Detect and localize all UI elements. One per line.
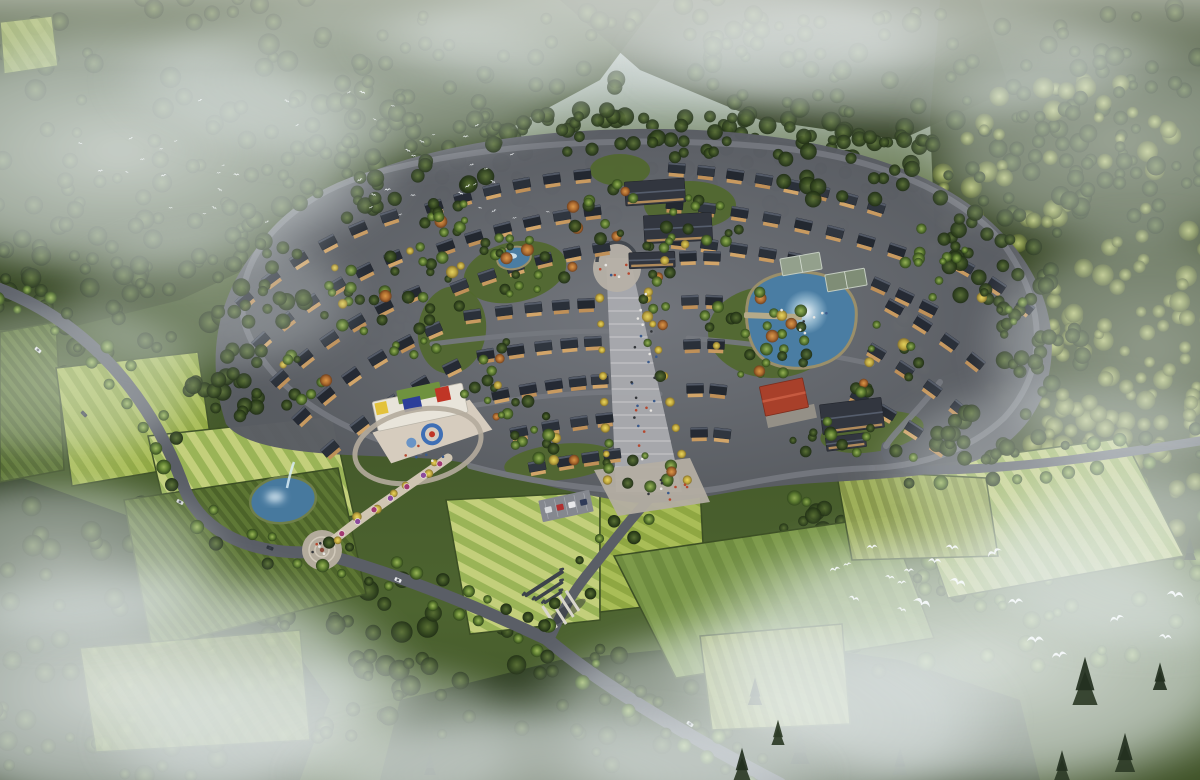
pedestrian [669, 498, 672, 501]
garden-tree [852, 448, 862, 458]
garden-tree [460, 390, 469, 399]
garden-tree [823, 417, 833, 427]
street-tree [410, 566, 424, 580]
boundary-tree [938, 233, 951, 246]
garden-tree [418, 257, 427, 266]
boundary-tree [805, 191, 822, 208]
garden-tree [379, 290, 391, 302]
garden-tree [320, 374, 332, 386]
garden-tree [825, 429, 837, 441]
street-tree [323, 537, 335, 549]
pedestrian [618, 275, 621, 278]
garden-tree [873, 321, 881, 329]
garden-tree [431, 343, 442, 354]
pedestrian [802, 320, 805, 323]
garden-tree [683, 223, 694, 234]
garden-tree [542, 413, 549, 420]
garden-tree [360, 327, 369, 336]
street-tree [453, 608, 466, 621]
plaza-sculpture [320, 548, 324, 552]
garden-tree [525, 236, 534, 245]
garden-tree [478, 355, 488, 365]
cafe-umbrella [339, 531, 345, 537]
pedestrian [825, 312, 828, 315]
villa-house [709, 384, 727, 400]
pond-glint [266, 492, 284, 502]
garden-tree [469, 382, 481, 394]
garden-tree [809, 428, 817, 436]
garden-tree [569, 455, 580, 466]
pedestrian [318, 545, 321, 548]
street-tree [391, 556, 403, 568]
garden-tree [461, 217, 468, 224]
garden-tree [642, 242, 651, 251]
garden-tree [487, 366, 497, 376]
pedestrian [599, 268, 602, 271]
garden-tree [506, 243, 513, 250]
garden-tree [522, 395, 535, 408]
pedestrian [645, 293, 648, 296]
cafe-umbrella [420, 472, 426, 478]
garden-tree [540, 251, 551, 262]
garden-tree [479, 246, 488, 255]
garden-tree [406, 247, 414, 255]
garden-tree [855, 386, 867, 398]
boundary-tree [638, 113, 649, 124]
pedestrian [315, 543, 318, 546]
villa-house [686, 383, 703, 397]
street-tree [538, 619, 551, 632]
forest-tree [377, 597, 391, 611]
garden-tree [617, 230, 624, 237]
boundary-tree [971, 270, 987, 286]
street-tree [595, 534, 604, 543]
garden-tree [627, 455, 639, 467]
garden-tree [612, 179, 623, 190]
pedestrian [311, 551, 314, 554]
pedestrian [686, 486, 689, 489]
pedestrian [655, 355, 658, 358]
garden-tree [906, 342, 915, 351]
garden-tree [511, 398, 520, 407]
villa-house [569, 376, 587, 392]
cafe-umbrella [371, 507, 377, 513]
street-tree [608, 515, 621, 528]
garden-tree [660, 256, 669, 265]
cafe-umbrella [387, 495, 393, 501]
pedestrian [648, 353, 651, 356]
garden-tree [660, 221, 673, 234]
garden-tree [436, 251, 448, 263]
pedestrian [780, 309, 783, 312]
garden-tree [549, 455, 559, 465]
garden-tree [777, 351, 787, 361]
garden-tree [950, 241, 960, 251]
pedestrian [630, 381, 633, 384]
pedestrian [647, 493, 650, 496]
pedestrian [635, 409, 638, 412]
pedestrian [637, 317, 640, 320]
garden-tree [603, 463, 614, 474]
boundary-tree [477, 168, 494, 185]
boundary-tree [952, 287, 968, 303]
street-tree [156, 460, 171, 475]
pedestrian [684, 483, 687, 486]
garden-tree [644, 481, 656, 493]
villa-house [729, 242, 748, 258]
garden-tree [661, 302, 670, 311]
pedestrian [627, 272, 630, 275]
fog-patch [50, 220, 370, 380]
garden-tree [700, 310, 711, 321]
street-tree [337, 569, 346, 578]
street-tree [292, 558, 302, 568]
villa-house [495, 305, 513, 321]
pedestrian [667, 492, 670, 495]
garden-tree [713, 342, 721, 350]
garden-tree [484, 397, 491, 404]
garden-tree [584, 198, 594, 208]
villa-house [545, 378, 564, 394]
garden-tree [642, 311, 653, 322]
villa-house [703, 251, 721, 265]
pedestrian [625, 264, 628, 267]
boundary-tree [889, 164, 900, 175]
villa-house [534, 340, 553, 356]
street-tree [436, 573, 449, 586]
garden-tree [740, 329, 750, 339]
garden-tree [418, 292, 429, 303]
villa-house [730, 206, 749, 222]
garden-tree [705, 322, 715, 332]
ginkgo-tree [603, 475, 612, 484]
garden-tree [900, 257, 912, 269]
garden-tree [600, 219, 610, 229]
cafe-umbrella [355, 519, 361, 525]
villa-house [574, 169, 592, 185]
garden-tree [306, 389, 316, 399]
garden-tree [801, 349, 813, 361]
pedestrian [660, 487, 663, 490]
ginkgo-tree [654, 346, 662, 354]
garden-tree [658, 320, 668, 330]
boundary-tree [836, 135, 850, 149]
villa-house [668, 162, 686, 177]
boundary-tree [708, 147, 719, 158]
boundary-tree [778, 152, 793, 167]
garden-tree [569, 220, 582, 233]
garden-tree [369, 295, 380, 306]
boundary-tree [800, 143, 817, 160]
garden-tree [744, 349, 755, 360]
garden-tree [762, 358, 771, 367]
street-tree [627, 531, 641, 545]
garden-tree [795, 305, 808, 318]
pedestrian [643, 430, 646, 433]
garden-tree [652, 276, 662, 286]
boundary-tree [863, 130, 877, 144]
garden-tree [659, 243, 670, 254]
garden-tree [409, 350, 418, 359]
street-tree [575, 556, 583, 564]
pedestrian [605, 264, 608, 267]
garden-tree [864, 357, 874, 367]
boundary-tree [678, 135, 690, 147]
ginkgo-tree [601, 423, 611, 433]
pedestrian [425, 454, 428, 457]
ginkgo-tree [595, 293, 604, 302]
garden-tree [454, 300, 465, 311]
garden-tree [643, 339, 651, 347]
garden-tree [567, 262, 577, 272]
cafe-umbrella [404, 484, 410, 490]
boundary-tree [845, 153, 856, 164]
pedestrian [634, 346, 637, 349]
pedestrian [638, 444, 641, 447]
pedestrian [821, 312, 824, 315]
pedestrian [614, 274, 617, 277]
pedestrian [417, 445, 420, 448]
pedestrian [610, 274, 613, 277]
garden-tree [904, 372, 913, 381]
garden-tree [766, 330, 779, 343]
garden-tree [439, 228, 449, 238]
villa-house [577, 298, 595, 313]
garden-tree [939, 258, 946, 265]
garden-tree [952, 253, 962, 263]
garden-tree [701, 235, 712, 246]
garden-tree [916, 224, 926, 234]
garden-tree [506, 290, 513, 297]
villa-house [690, 427, 707, 441]
garden-tree [789, 437, 796, 444]
street-tree [364, 577, 373, 586]
garden-tree [390, 267, 399, 276]
street-tree [513, 633, 523, 643]
forest-tree [507, 655, 526, 674]
garden-tree [500, 252, 512, 264]
villa-house [543, 172, 562, 188]
street-tree [268, 532, 277, 541]
boundary-tree [707, 124, 723, 140]
pedestrian [660, 479, 663, 482]
boundary-tree [828, 135, 838, 145]
street-tree [549, 598, 561, 610]
garden-tree [416, 242, 425, 251]
street-tree [483, 595, 492, 604]
garden-tree [460, 200, 468, 208]
boundary-tree [664, 132, 679, 147]
garden-tree [457, 262, 465, 270]
boundary-tree [868, 172, 880, 184]
pedestrian [636, 405, 639, 408]
garden-tree [511, 270, 520, 279]
villa-house [552, 299, 570, 314]
garden-tree [384, 251, 396, 263]
pedestrian [650, 330, 653, 333]
boundary-tree [614, 137, 627, 150]
boundary-tree [251, 388, 262, 399]
garden-tree [433, 211, 444, 222]
garden-tree [377, 315, 388, 326]
pedestrian [637, 425, 640, 428]
ginkgo-tree [597, 320, 604, 327]
villa-house [681, 295, 699, 309]
sky-haze [0, 0, 1200, 70]
street-tree [345, 543, 354, 552]
garden-tree [961, 247, 968, 254]
villa-house [570, 415, 589, 431]
boundary-tree [647, 137, 658, 148]
garden-tree [669, 208, 677, 216]
garden-tree [424, 314, 435, 325]
pedestrian [647, 361, 650, 364]
ginkgo-tree [665, 397, 675, 407]
ginkgo-tree [599, 372, 607, 380]
garden-tree [496, 343, 507, 354]
street-tree [643, 514, 654, 525]
garden-tree [800, 446, 812, 458]
garden-tree [389, 346, 399, 356]
boundary-tree [868, 192, 883, 207]
ginkgo-tree [600, 398, 609, 407]
garden-tree [420, 337, 427, 344]
pedestrian [653, 400, 656, 403]
garden-tree [521, 243, 534, 256]
garden-tree [868, 345, 875, 352]
garden-tree [734, 225, 744, 235]
garden-tree [836, 439, 848, 451]
boundary-tree [585, 143, 598, 156]
pedestrian [650, 409, 653, 412]
garden-tree [681, 240, 690, 249]
villa-house [463, 309, 482, 325]
pedestrian [640, 335, 643, 338]
garden-tree [720, 235, 732, 247]
pedestrian [661, 482, 664, 485]
ginkgo-tree [672, 424, 680, 432]
street-tree [316, 559, 329, 572]
garden-tree [542, 429, 555, 442]
villa-house [506, 344, 525, 360]
boundary-tree [234, 410, 247, 423]
boundary-tree [562, 146, 572, 156]
pedestrian [641, 458, 644, 461]
garden-tree [425, 303, 435, 313]
garden-tree [763, 321, 772, 330]
garden-tree [786, 318, 798, 330]
garden-tree [754, 365, 765, 376]
garden-tree [799, 335, 809, 345]
boundary-tree [776, 174, 791, 189]
garden-tree [548, 443, 560, 455]
villa-house [725, 169, 744, 185]
garden-tree [482, 375, 494, 387]
garden-tree [685, 194, 692, 201]
pedestrian [813, 316, 816, 319]
ginkgo-tree [649, 320, 656, 327]
pedestrian [799, 329, 802, 332]
garden-tree [622, 478, 633, 489]
garden-tree [534, 270, 543, 279]
street-tree [585, 588, 597, 600]
cafe-umbrella [437, 461, 443, 467]
street-tree [473, 615, 484, 626]
garden-tree [514, 281, 524, 291]
garden-tree [402, 291, 415, 304]
garden-tree [730, 312, 742, 324]
garden-tree [725, 229, 733, 237]
ginkgo-tree [334, 536, 342, 544]
villa-community-aerial-rendering [0, 0, 1200, 780]
garden-tree [533, 285, 541, 293]
ginkgo-tree [598, 346, 605, 353]
pedestrian [641, 323, 644, 326]
garden-tree [505, 234, 514, 243]
boundary-tree [879, 137, 889, 147]
street-tree [384, 581, 394, 591]
garden-tree [716, 201, 725, 210]
garden-tree [737, 371, 744, 378]
pedestrian [633, 416, 636, 419]
pedestrian [323, 552, 326, 555]
boundary-tree [626, 136, 640, 150]
villa-house [713, 428, 731, 444]
garden-tree [628, 193, 638, 203]
garden-tree [567, 200, 579, 212]
garden-tree [494, 381, 502, 389]
garden-tree [530, 426, 538, 434]
villa-house [560, 338, 578, 353]
garden-tree [495, 354, 505, 364]
street-tree [500, 603, 512, 615]
garden-tree [712, 301, 724, 313]
garden-tree [594, 232, 607, 245]
garden-tree [532, 452, 545, 465]
garden-tree [866, 424, 875, 433]
pedestrian [674, 486, 677, 489]
villa-house [524, 302, 542, 317]
boundary-tree [574, 131, 585, 142]
ginkgo-tree [603, 451, 610, 458]
garden-tree [511, 441, 520, 450]
garden-tree [494, 233, 504, 243]
garden-tree [928, 293, 936, 301]
ginkgo-tree [683, 475, 692, 484]
boundary-tree [704, 111, 716, 123]
pedestrian [404, 454, 407, 457]
garden-tree [604, 439, 613, 448]
villa-house [581, 451, 600, 467]
pedestrian [645, 407, 648, 410]
garden-tree [778, 367, 789, 378]
boundary-tree [722, 136, 732, 146]
forest-tree [802, 497, 812, 507]
street-tree [427, 600, 438, 611]
garden-tree [776, 310, 787, 321]
garden-tree [914, 258, 923, 267]
garden-tree [510, 431, 519, 440]
garden-tree [498, 412, 505, 419]
garden-tree [664, 267, 676, 279]
garden-tree [913, 357, 924, 368]
villa-house [683, 339, 701, 353]
pedestrian [635, 397, 638, 400]
garden-tree [862, 432, 871, 441]
garden-tree [413, 323, 425, 335]
boundary-tree [896, 178, 910, 192]
boundary-tree [796, 129, 812, 145]
